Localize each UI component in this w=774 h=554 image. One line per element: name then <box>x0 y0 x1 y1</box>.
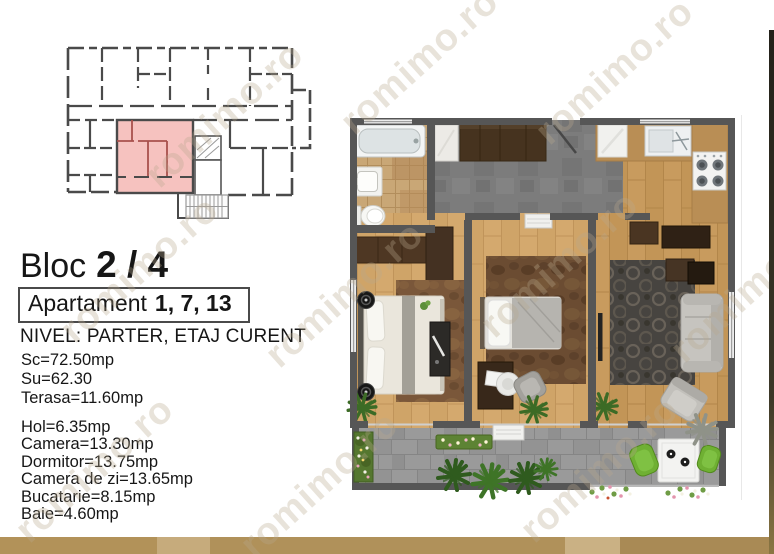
area-bucatarie: Bucatarie=8.15mp <box>21 489 193 506</box>
dresser <box>354 237 427 263</box>
toilet <box>353 206 385 227</box>
terrace-table <box>658 439 699 482</box>
gold-segment <box>565 537 620 554</box>
building-schematic-plan <box>60 30 320 230</box>
gold-segment <box>157 537 210 554</box>
level-line: NIVEL: PARTER, ETAJ CURENT <box>20 326 306 348</box>
shoe-cabinet <box>435 125 458 161</box>
apartment-label: Apartament <box>28 290 147 317</box>
right-edge-strip <box>769 30 774 554</box>
bloc-value: 2 / 4 <box>96 244 168 286</box>
sofa <box>681 294 723 372</box>
bedroom <box>348 227 472 421</box>
hall-door-threshold <box>525 214 552 228</box>
single-bed <box>480 297 561 349</box>
area-camera: Camera=13.30mp <box>21 436 193 453</box>
bottom-gold-bar <box>0 537 774 554</box>
nightstand <box>358 292 375 309</box>
flower-bed <box>354 432 373 482</box>
bloc-label: Bloc <box>20 247 86 286</box>
apartment-floorplan-render <box>340 110 744 522</box>
area-sc: Sc=72.50mp <box>21 351 143 370</box>
area-dormitor: Dormitor=13.75mp <box>21 454 193 471</box>
planter <box>436 435 492 449</box>
gold-segment <box>620 537 774 554</box>
bathtub <box>354 125 425 157</box>
gold-segment <box>0 537 157 554</box>
tv <box>598 313 603 361</box>
area-terasa: Terasa=11.60mp <box>21 389 143 408</box>
tv-stand <box>430 322 450 376</box>
area-hol: Hol=6.35mp <box>21 419 193 436</box>
areas-rooms: Hol=6.35mp Camera=13.30mp Dormitor=13.75… <box>21 419 193 523</box>
sink <box>353 167 382 196</box>
highlighted-unit <box>117 120 193 193</box>
listing-image: Bloc2 / 4 Apartament1, 7, 13 NIVEL: PART… <box>0 0 774 554</box>
gold-segment <box>210 537 565 554</box>
bloc-title: Bloc2 / 4 <box>20 244 168 286</box>
flower-cluster <box>589 485 631 499</box>
wardrobe <box>460 123 546 161</box>
apartment-number-box: Apartament1, 7, 13 <box>18 287 250 323</box>
area-su: Su=62.30 <box>21 370 143 389</box>
fridge <box>598 125 627 157</box>
area-camera-de-zi: Camera de zi=13.65mp <box>21 471 193 488</box>
area-baie: Baie=4.60mp <box>21 506 193 523</box>
tall-wardrobe <box>426 227 453 283</box>
flower-cluster <box>665 486 709 499</box>
coffee-table <box>666 259 714 284</box>
areas-primary: Sc=72.50mp Su=62.30 Terasa=11.60mp <box>21 351 143 408</box>
terrace-threshold <box>493 425 524 440</box>
apartment-numbers: 1, 7, 13 <box>155 290 232 317</box>
kitchen-sink <box>645 126 691 156</box>
stove <box>693 152 726 190</box>
dining-table <box>630 222 658 244</box>
dining-table <box>662 226 710 248</box>
